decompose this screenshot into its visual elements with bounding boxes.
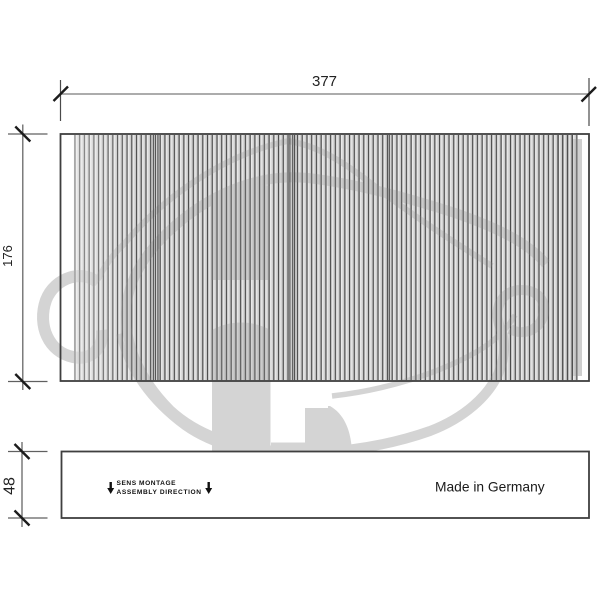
svg-text:SENS MONTAGE: SENS MONTAGE xyxy=(117,480,177,487)
svg-text:Made in Germany: Made in Germany xyxy=(435,480,545,495)
svg-text:176: 176 xyxy=(0,245,15,267)
svg-text:ASSEMBLY DIRECTION: ASSEMBLY DIRECTION xyxy=(117,489,202,496)
svg-text:377: 377 xyxy=(312,73,337,90)
svg-text:48: 48 xyxy=(2,477,19,495)
